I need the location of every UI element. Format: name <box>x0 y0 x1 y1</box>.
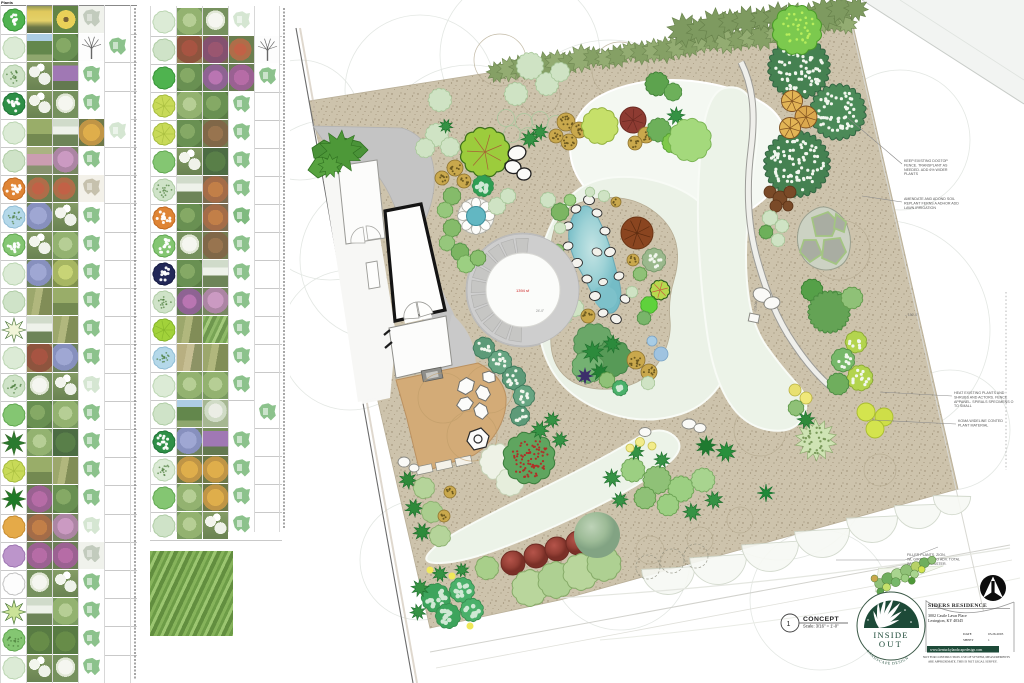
svg-text:OUT: OUT <box>879 639 903 649</box>
svg-text:SIDERS RESIDENCE: SIDERS RESIDENCE <box>928 603 987 609</box>
svg-text:03.26.2003: 03.26.2003 <box>988 632 1004 636</box>
svg-text:www.kentuckylandscapedesign.co: www.kentuckylandscapedesign.com <box>930 648 982 652</box>
svg-text:1: 1 <box>988 638 990 642</box>
svg-text:ARE APPROXIMATE. THIS IS NOT L: ARE APPROXIMATE. THIS IS NOT LEGAL SURVE… <box>928 660 998 664</box>
svg-text:DATE: DATE <box>963 632 972 636</box>
svg-text:SHEET: SHEET <box>963 638 974 642</box>
